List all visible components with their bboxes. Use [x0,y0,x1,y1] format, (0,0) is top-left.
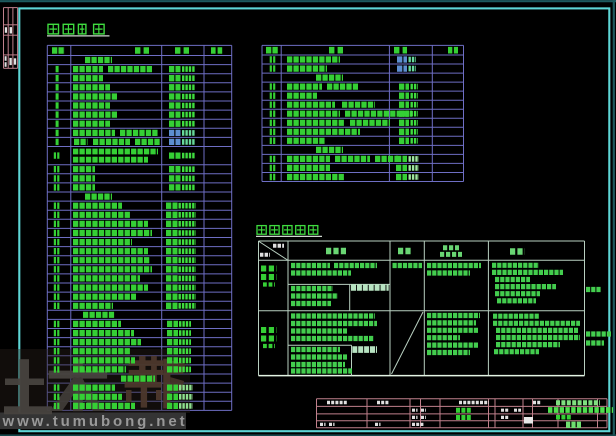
svg-text:www.tumubong.net: www.tumubong.net [2,413,188,430]
